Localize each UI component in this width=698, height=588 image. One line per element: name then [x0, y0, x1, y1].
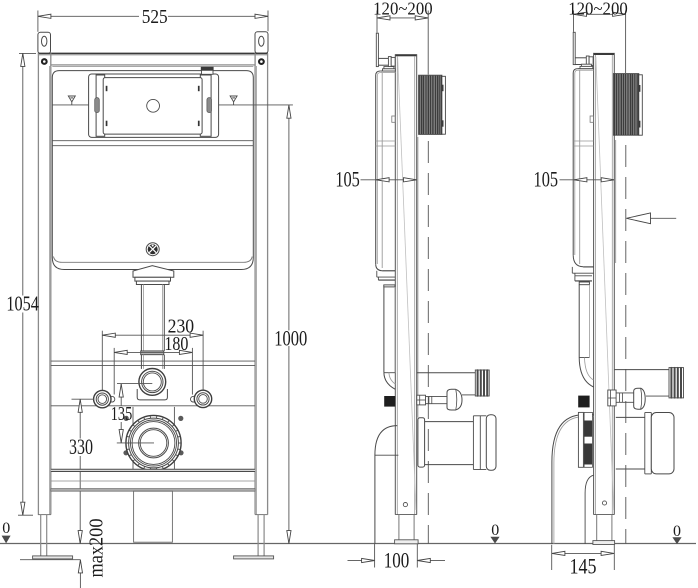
svg-text:105: 105: [534, 167, 559, 192]
svg-text:120~200: 120~200: [373, 0, 433, 18]
svg-text:330: 330: [69, 434, 93, 459]
svg-text:145: 145: [570, 554, 597, 579]
svg-text:180: 180: [164, 333, 188, 355]
svg-text:100: 100: [384, 548, 410, 573]
svg-text:max200: max200: [86, 519, 108, 578]
svg-text:105: 105: [335, 167, 360, 192]
svg-text:525: 525: [142, 6, 168, 28]
svg-text:0: 0: [2, 520, 10, 537]
svg-text:1000: 1000: [274, 326, 307, 351]
svg-text:120~200: 120~200: [568, 0, 628, 19]
svg-text:135: 135: [111, 404, 133, 425]
svg-text:1054: 1054: [6, 292, 39, 316]
svg-text:0: 0: [491, 522, 499, 539]
